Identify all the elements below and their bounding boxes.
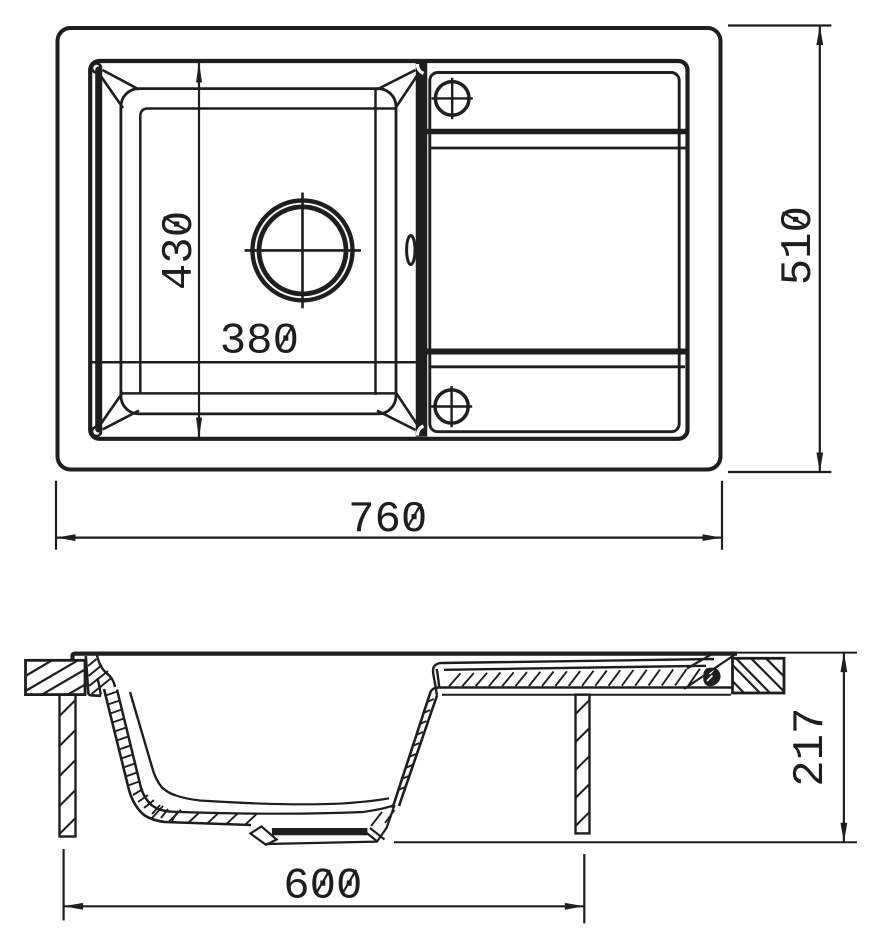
svg-text:760: 760 bbox=[348, 495, 427, 545]
svg-text:380: 380 bbox=[220, 317, 299, 367]
svg-text:510: 510 bbox=[774, 206, 824, 285]
svg-text:600: 600 bbox=[283, 861, 362, 911]
svg-text:430: 430 bbox=[155, 211, 205, 290]
svg-text:217: 217 bbox=[786, 708, 836, 787]
